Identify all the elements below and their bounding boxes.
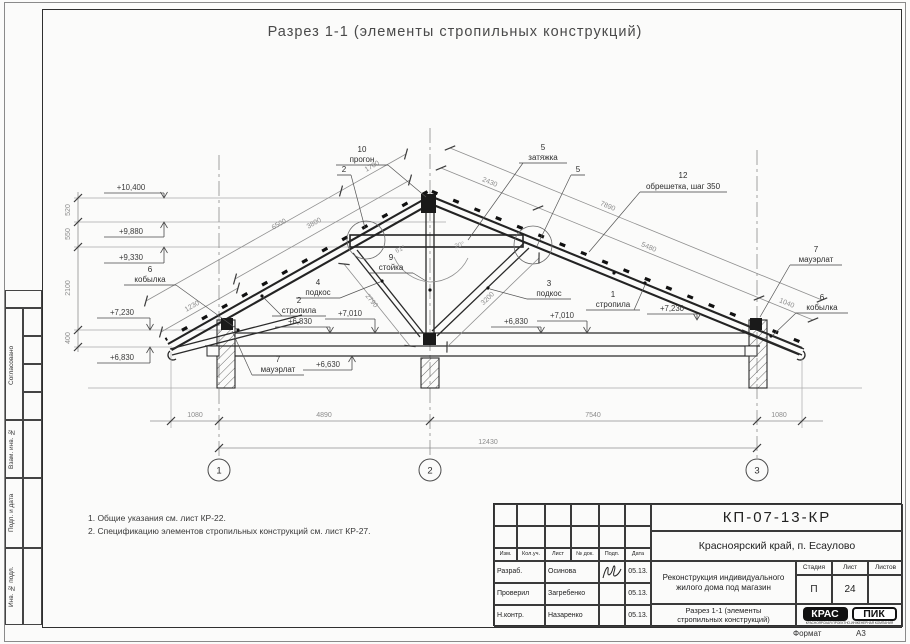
axis-number: 2 — [427, 466, 432, 477]
stamp-soglasovano: Согласовано — [9, 316, 16, 414]
svg-text:обрешетка, шаг 350: обрешетка, шаг 350 — [646, 182, 721, 191]
gutter-hook-right — [797, 351, 805, 360]
logo-pik: ПИК — [852, 607, 897, 621]
svg-text:кобылка: кобылка — [134, 275, 166, 284]
signature — [600, 562, 624, 582]
general-notes: 1. Общие указания см. лист КР-22. 2. Спе… — [88, 512, 371, 538]
dim-label: 2100 — [65, 280, 72, 296]
format-value: А3 — [856, 629, 866, 638]
label-kobylka-left: 6 кобылка — [124, 265, 237, 329]
dim-label: 520 — [65, 204, 72, 216]
tb-role: Н.контр. — [494, 605, 545, 627]
tb-signature-cell — [599, 561, 625, 583]
label-stropila-left: 2 стропила — [263, 296, 326, 316]
elevation-mark: +7,010 — [537, 311, 591, 333]
tb-location: Красноярский край, п. Есаулово — [651, 531, 903, 561]
svg-text:9: 9 — [389, 253, 394, 262]
svg-text:12: 12 — [679, 171, 688, 180]
tb-stage-label: Стадия — [796, 561, 832, 575]
svg-text:10: 10 — [358, 145, 367, 154]
elevation-ref-lines — [74, 198, 862, 388]
dim-label: 550 — [65, 228, 72, 240]
dim-label: 7890 — [599, 200, 616, 212]
tb-name: Назаренко — [545, 605, 599, 627]
tb-logo-cell: КРАС ПИК КРАСНОЯРСКАЯ ПРОЕКТНО-ИНЖЕНЕРНА… — [796, 604, 903, 627]
dim-label: 400 — [65, 332, 72, 344]
svg-text:6: 6 — [148, 265, 153, 274]
stamp-inv-podl: Инв. № подл. — [9, 553, 16, 620]
tb-name: Осинова — [545, 561, 599, 583]
tb-stage-value: П — [796, 575, 832, 604]
tb-role: Проверил — [494, 583, 545, 605]
elevation-mark: +6,630 — [303, 356, 356, 370]
format-label: Формат — [793, 629, 821, 638]
dim-label: 1080 — [187, 412, 203, 419]
svg-text:2: 2 — [297, 296, 302, 305]
tb-project: Реконструкция индивидуального жилого дом… — [651, 561, 796, 604]
dim-label: 6500 — [271, 218, 288, 232]
svg-text:+7,230: +7,230 — [110, 308, 135, 317]
roof-structure — [166, 191, 806, 360]
tb-sheet-value: 24 — [832, 575, 868, 604]
svg-text:затяжка: затяжка — [528, 153, 558, 162]
elevation-mark: +9,880 — [104, 222, 168, 237]
svg-text:подкос: подкос — [536, 289, 561, 298]
svg-text:4: 4 — [316, 278, 321, 287]
zatyazhka-tie — [350, 235, 523, 247]
tb-col-izm: Изм. — [494, 548, 517, 561]
dim-label: 2430 — [481, 176, 498, 188]
tb-name: Загребенко — [545, 583, 599, 605]
label-mauerlat-left: 7 мауэрлат — [232, 331, 304, 375]
elevation-mark: +9,330 — [104, 247, 168, 263]
angle-arcs: 61° 20° — [394, 240, 468, 282]
svg-text:7: 7 — [276, 355, 281, 364]
bottom-dimensions: 1080 4890 7540 1080 12430 — [150, 352, 823, 452]
svg-text:6: 6 — [820, 293, 825, 302]
svg-text:кобылка: кобылка — [806, 303, 838, 312]
axis-markers: 1 2 3 — [208, 459, 768, 481]
dim-label: 12430 — [478, 439, 498, 446]
dim-label: 7540 — [585, 412, 601, 419]
svg-text:+7,010: +7,010 — [338, 309, 363, 318]
tb-sheet-title: Разрез 1-1 (элементы стропильных констру… — [651, 604, 796, 627]
angle-label: 20° — [454, 240, 466, 251]
elevation-mark: +7,010 — [325, 309, 379, 333]
note-line: 2. Спецификацию элементов стропильных ко… — [88, 525, 371, 538]
elevation-mark: +6,830 — [491, 317, 545, 333]
stamp-vzam-inv: Взам. инв. № — [9, 424, 16, 474]
svg-text:1: 1 — [611, 290, 616, 299]
piers — [217, 320, 767, 388]
elevation-mark: +10,400 — [104, 183, 168, 198]
tb-role: Разраб. — [494, 561, 545, 583]
logo-kras: КРАС — [803, 607, 848, 621]
obreshetka-right — [432, 191, 804, 343]
note-line: 1. Общие указания см. лист КР-22. — [88, 512, 371, 525]
dim-label: 1040 — [778, 297, 795, 309]
svg-text:3: 3 — [547, 279, 552, 288]
mauerlat-right — [750, 318, 762, 330]
label-progon: 10 прогон — [336, 145, 426, 197]
svg-text:подкос: подкос — [305, 288, 330, 297]
drawing-sheet: Разрез 1-1 (элементы стропильных констру… — [0, 0, 910, 644]
tb-sheet-label: Лист — [832, 561, 868, 575]
dim-label: 4890 — [316, 412, 332, 419]
svg-text:5: 5 — [576, 165, 581, 174]
tb-date: 05.13. — [625, 605, 651, 627]
tb-col-podp: Подп. — [599, 548, 625, 561]
svg-text:+6,830: +6,830 — [110, 353, 135, 362]
svg-text:+7,230: +7,230 — [660, 304, 685, 313]
svg-text:5: 5 — [541, 143, 546, 152]
gutter-hook-left — [168, 351, 176, 360]
tb-date: 05.13. — [625, 561, 651, 583]
svg-text:2: 2 — [342, 165, 347, 174]
svg-text:стойка: стойка — [379, 263, 404, 272]
svg-text:7: 7 — [814, 245, 819, 254]
svg-text:мауэрлат: мауэрлат — [261, 365, 296, 374]
axis-number: 1 — [216, 466, 221, 477]
svg-text:+9,330: +9,330 — [119, 253, 144, 262]
svg-text:стропила: стропила — [596, 300, 631, 309]
elevation-mark: +7,230 — [647, 304, 701, 320]
stamp-podp-data: Подп. и дата — [9, 483, 16, 543]
tb-col-koluch: Кол.уч. — [517, 548, 545, 561]
tb-date: 05.13. — [625, 583, 651, 605]
svg-text:стропила: стропила — [282, 306, 317, 315]
axis-number: 3 — [754, 466, 759, 477]
svg-text:+9,880: +9,880 — [119, 227, 144, 236]
svg-text:+6,830: +6,830 — [288, 317, 313, 326]
tb-col-list: Лист — [545, 548, 571, 561]
left-vertical-dim-chain: 520 550 2100 400 — [65, 192, 82, 352]
tb-col-data: Дата — [625, 548, 651, 561]
angle-label: 61° — [394, 243, 407, 255]
tb-doc-number: КП-07-13-КР — [651, 504, 903, 531]
svg-text:+6,830: +6,830 — [504, 317, 529, 326]
dim-label: 5480 — [640, 241, 657, 253]
elevation-mark: +7,230 — [97, 308, 154, 330]
svg-text:прогон: прогон — [350, 155, 375, 164]
label-obreshetka: 12 обрешетка, шаг 350 — [589, 171, 727, 252]
label-zatyazhka-2: 5 — [537, 165, 585, 246]
ceiling-band — [205, 333, 760, 356]
svg-text:мауэрлат: мауэрлат — [799, 255, 834, 264]
dim-label: 2790 — [364, 293, 379, 310]
tb-sheets-label: Листов — [868, 561, 903, 575]
title-block: Изм. Кол.уч. Лист № док. Подп. Дата Разр… — [493, 503, 902, 626]
svg-text:+7,010: +7,010 — [550, 311, 575, 320]
dim-label: 1230 — [184, 300, 201, 314]
tb-col-ndok: № док. — [571, 548, 599, 561]
logo-subtext: КРАСНОЯРСКАЯ ПРОЕКТНО-ИНЖЕНЕРНАЯ КОМПАНИ… — [806, 622, 893, 626]
mauerlat-left — [221, 318, 233, 330]
label-podkos-right: 3 подкос — [490, 279, 571, 299]
progon-ridge-beam — [421, 194, 436, 213]
svg-text:+10,400: +10,400 — [117, 183, 146, 192]
dim-label: 1080 — [771, 412, 787, 419]
svg-text:+6,630: +6,630 — [316, 360, 341, 369]
dim-label: 3800 — [306, 217, 323, 231]
elevation-mark: +6,830 — [97, 347, 154, 363]
